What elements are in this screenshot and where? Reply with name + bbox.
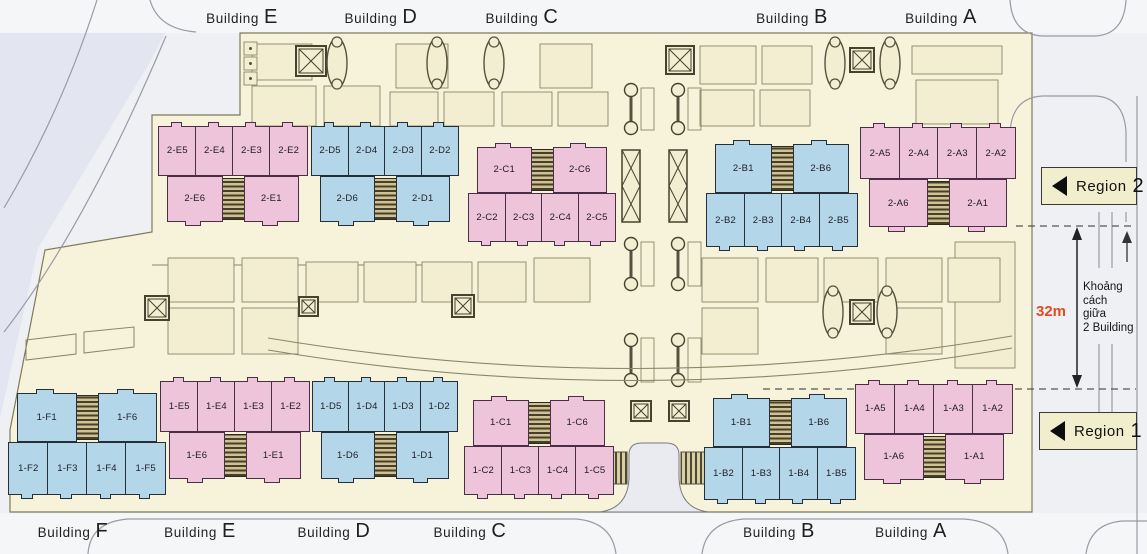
region-2-label[interactable]: Region2 — [1041, 167, 1137, 205]
unit-label: 2-C5 — [586, 212, 607, 223]
unit-1-d6[interactable]: 1-D6 — [321, 432, 375, 479]
unit-1-c4[interactable]: 1-C4 — [538, 446, 577, 495]
unit-label: 1-E6 — [186, 450, 207, 461]
cluster-region2-building-e: 2-E52-E42-E32-E22-E62-E1 — [158, 126, 308, 222]
unit-label: 1-D1 — [412, 450, 433, 461]
unit-1-a6[interactable]: 1-A6 — [864, 434, 924, 480]
cluster-region2-building-d: 2-D52-D42-D32-D22-D62-D1 — [311, 126, 459, 222]
unit-label: 2-D5 — [319, 145, 340, 156]
building-label-bottom-d: BuildingD — [298, 520, 371, 543]
unit-label: 1-C5 — [584, 465, 605, 476]
unit-label: 2-A5 — [870, 148, 891, 159]
building-label-bottom-a: BuildingA — [875, 520, 947, 543]
unit-1-d2[interactable]: 1-D2 — [420, 381, 458, 432]
site-plan: 2-E52-E42-E32-E22-E62-E12-D52-D42-D32-D2… — [0, 0, 1147, 554]
unit-2-a5[interactable]: 2-A5 — [860, 127, 900, 179]
unit-2-d6[interactable]: 2-D6 — [320, 176, 375, 222]
building-label-bottom-b: BuildingB — [743, 520, 815, 543]
unit-1-b4[interactable]: 1-B4 — [779, 447, 818, 500]
building-label-top-c: BuildingC — [486, 6, 559, 29]
unit-label: 2-A1 — [967, 198, 988, 209]
lift-core — [923, 436, 946, 478]
lift-core — [222, 178, 245, 220]
unit-label: 1-C6 — [567, 417, 588, 428]
unit-1-c6[interactable]: 1-C6 — [550, 400, 606, 446]
unit-label: 1-C1 — [490, 417, 511, 428]
unit-label: 2-C4 — [550, 212, 571, 223]
unit-label: 1-B6 — [808, 417, 829, 428]
unit-2-e5[interactable]: 2-E5 — [158, 126, 197, 176]
unit-1-c2[interactable]: 1-C2 — [464, 446, 503, 495]
unit-2-c2[interactable]: 2-C2 — [468, 193, 506, 242]
region-1-label[interactable]: Region1 — [1039, 412, 1137, 450]
unit-label: 2-C6 — [569, 164, 590, 175]
unit-2-e6[interactable]: 2-E6 — [167, 176, 223, 222]
unit-1-e4[interactable]: 1-E4 — [197, 381, 236, 432]
unit-2-a1[interactable]: 2-A1 — [949, 179, 1008, 227]
unit-label: 2-A4 — [908, 148, 929, 159]
unit-1-c5[interactable]: 1-C5 — [575, 446, 614, 495]
unit-2-b4[interactable]: 2-B4 — [781, 193, 820, 247]
unit-label: 2-E6 — [184, 193, 205, 204]
unit-1-d3[interactable]: 1-D3 — [384, 381, 422, 432]
unit-2-c5[interactable]: 2-C5 — [578, 193, 616, 242]
unit-1-e1[interactable]: 1-E1 — [246, 432, 302, 479]
unit-label: 2-E5 — [167, 145, 188, 156]
lift-core — [927, 181, 950, 225]
lift-core — [528, 402, 551, 444]
unit-label: 2-B2 — [715, 215, 736, 226]
unit-2-a3[interactable]: 2-A3 — [937, 127, 977, 179]
unit-2-b1[interactable]: 2-B1 — [715, 144, 772, 193]
building-label-top-a: BuildingA — [905, 6, 977, 29]
unit-1-e2[interactable]: 1-E2 — [271, 381, 310, 432]
unit-2-e1[interactable]: 2-E1 — [244, 176, 300, 222]
unit-label: 1-A5 — [865, 403, 886, 414]
unit-1-a4[interactable]: 1-A4 — [894, 384, 935, 434]
unit-1-a1[interactable]: 1-A1 — [945, 434, 1005, 480]
unit-label: 1-D3 — [392, 401, 413, 412]
distance-note-line: cách — [1083, 295, 1134, 309]
unit-1-a2[interactable]: 1-A2 — [972, 384, 1013, 434]
unit-1-a5[interactable]: 1-A5 — [855, 384, 896, 434]
building-label-top-e: BuildingE — [206, 6, 278, 29]
building-label-bottom-e: BuildingE — [164, 520, 236, 543]
unit-2-c1[interactable]: 2-C1 — [477, 147, 532, 193]
unit-label: 2-D1 — [412, 193, 433, 204]
unit-1-d5[interactable]: 1-D5 — [312, 381, 350, 432]
distance-note-line: giữa — [1083, 308, 1134, 322]
unit-label: 1-A6 — [883, 451, 904, 462]
unit-label: 2-E2 — [278, 145, 299, 156]
unit-2-e2[interactable]: 2-E2 — [269, 126, 308, 176]
unit-label: 2-D4 — [356, 145, 377, 156]
unit-label: 2-A2 — [985, 148, 1006, 159]
unit-label: 1-E3 — [243, 401, 264, 412]
unit-label: 1-F4 — [96, 463, 116, 474]
building-label-bottom-f: BuildingF — [38, 520, 109, 543]
unit-2-d5[interactable]: 2-D5 — [311, 126, 349, 176]
unit-label: 1-F2 — [18, 463, 38, 474]
unit-2-b5[interactable]: 2-B5 — [819, 193, 858, 247]
unit-label: 2-D2 — [429, 145, 450, 156]
unit-label: 1-B1 — [731, 417, 752, 428]
cluster-region1-building-a: 1-A51-A41-A31-A21-A61-A1 — [855, 384, 1013, 480]
unit-1-f3[interactable]: 1-F3 — [47, 442, 88, 495]
unit-1-d4[interactable]: 1-D4 — [348, 381, 386, 432]
unit-1-f1[interactable]: 1-F1 — [17, 393, 77, 442]
cluster-region2-building-c: 2-C12-C62-C22-C32-C42-C5 — [468, 147, 616, 242]
unit-label: 1-D2 — [428, 401, 449, 412]
lift-core — [771, 146, 794, 191]
unit-label: 2-E3 — [241, 145, 262, 156]
unit-label: 1-B4 — [788, 468, 809, 479]
unit-2-c3[interactable]: 2-C3 — [505, 193, 543, 242]
unit-2-d2[interactable]: 2-D2 — [421, 126, 459, 176]
unit-1-e5[interactable]: 1-E5 — [160, 381, 199, 432]
unit-2-d1[interactable]: 2-D1 — [396, 176, 451, 222]
distance-value: 32m — [1036, 303, 1066, 320]
cluster-region1-building-e: 1-E51-E41-E31-E21-E61-E1 — [160, 381, 310, 479]
unit-label: 1-D4 — [356, 401, 377, 412]
unit-label: 1-A2 — [982, 403, 1003, 414]
unit-2-a2[interactable]: 2-A2 — [976, 127, 1016, 179]
unit-label: 2-B4 — [790, 215, 811, 226]
unit-1-b6[interactable]: 1-B6 — [791, 398, 848, 447]
unit-label: 1-C2 — [473, 465, 494, 476]
unit-1-f4[interactable]: 1-F4 — [86, 442, 127, 495]
lift-core — [374, 178, 397, 220]
unit-1-b5[interactable]: 1-B5 — [817, 447, 856, 500]
cluster-region1-building-b: 1-B11-B61-B21-B31-B41-B5 — [704, 398, 856, 500]
unit-1-b1[interactable]: 1-B1 — [713, 398, 770, 447]
unit-label: 1-D5 — [320, 401, 341, 412]
unit-label: 1-D6 — [337, 450, 358, 461]
unit-label: 2-A3 — [947, 148, 968, 159]
building-label-bottom-c: BuildingC — [434, 520, 507, 543]
unit-2-a6[interactable]: 2-A6 — [869, 179, 928, 227]
distance-note-line: Khoảng — [1083, 281, 1134, 295]
unit-2-b2[interactable]: 2-B2 — [706, 193, 745, 247]
unit-2-e4[interactable]: 2-E4 — [195, 126, 234, 176]
lift-core — [769, 400, 792, 445]
unit-label: 2-B5 — [828, 215, 849, 226]
unit-1-c1[interactable]: 1-C1 — [473, 400, 529, 446]
unit-2-c6[interactable]: 2-C6 — [553, 147, 608, 193]
unit-label: 2-C3 — [513, 212, 534, 223]
unit-label: 2-D3 — [393, 145, 414, 156]
unit-1-e3[interactable]: 1-E3 — [234, 381, 273, 432]
unit-2-b6[interactable]: 2-B6 — [793, 144, 850, 193]
building-label-top-d: BuildingD — [345, 6, 418, 29]
unit-1-b3[interactable]: 1-B3 — [742, 447, 781, 500]
unit-label: 1-F5 — [136, 463, 156, 474]
cluster-region1-building-d: 1-D51-D41-D31-D21-D61-D1 — [312, 381, 458, 479]
unit-label: 2-C1 — [494, 164, 515, 175]
unit-label: 2-E4 — [204, 145, 225, 156]
unit-1-f2[interactable]: 1-F2 — [8, 442, 49, 495]
region-arrow-icon — [1052, 176, 1067, 196]
unit-1-b2[interactable]: 1-B2 — [704, 447, 743, 500]
building-label-top-b: BuildingB — [756, 6, 828, 29]
unit-label: 1-E2 — [280, 401, 301, 412]
unit-label: 1-E5 — [169, 401, 190, 412]
unit-1-e6[interactable]: 1-E6 — [169, 432, 225, 479]
unit-label: 1-E1 — [263, 450, 284, 461]
unit-1-c3[interactable]: 1-C3 — [501, 446, 540, 495]
unit-2-a4[interactable]: 2-A4 — [899, 127, 939, 179]
apartment-clusters: 2-E52-E42-E32-E22-E62-E12-D52-D42-D32-D2… — [0, 0, 1147, 554]
unit-label: 1-F6 — [117, 412, 137, 423]
unit-label: 2-B6 — [810, 163, 831, 174]
distance-note-line: 2 Building — [1083, 322, 1134, 336]
unit-label: 1-C4 — [547, 465, 568, 476]
unit-label: 1-E4 — [206, 401, 227, 412]
unit-2-e3[interactable]: 2-E3 — [232, 126, 271, 176]
region-arrow-icon — [1050, 421, 1065, 441]
unit-label: 1-B3 — [751, 468, 772, 479]
unit-label: 1-B5 — [826, 468, 847, 479]
lift-core — [76, 395, 99, 440]
unit-label: 1-B2 — [713, 468, 734, 479]
unit-label: 1-F3 — [57, 463, 77, 474]
unit-1-f6[interactable]: 1-F6 — [98, 393, 158, 442]
unit-1-d1[interactable]: 1-D1 — [396, 432, 450, 479]
unit-label: 2-D6 — [337, 193, 358, 204]
lift-core — [224, 434, 247, 477]
unit-label: 2-B3 — [753, 215, 774, 226]
lift-core — [531, 149, 554, 191]
unit-label: 1-F1 — [37, 412, 57, 423]
unit-label: 1-A3 — [943, 403, 964, 414]
cluster-region1-building-f: 1-F11-F61-F21-F31-F41-F5 — [8, 393, 166, 495]
unit-label: 2-B1 — [733, 163, 754, 174]
unit-label: 1-A1 — [964, 451, 985, 462]
unit-label: 2-C2 — [476, 212, 497, 223]
distance-note: Khoảngcáchgiữa2 Building — [1083, 281, 1134, 335]
unit-label: 2-E1 — [261, 193, 282, 204]
unit-2-d3[interactable]: 2-D3 — [384, 126, 422, 176]
unit-2-c4[interactable]: 2-C4 — [541, 193, 579, 242]
lift-core — [374, 434, 397, 477]
unit-label: 1-A4 — [904, 403, 925, 414]
unit-1-a3[interactable]: 1-A3 — [933, 384, 974, 434]
unit-2-d4[interactable]: 2-D4 — [348, 126, 386, 176]
cluster-region2-building-a: 2-A52-A42-A32-A22-A62-A1 — [860, 127, 1016, 227]
cluster-region2-building-b: 2-B12-B62-B22-B32-B42-B5 — [706, 144, 858, 247]
unit-label: 2-A6 — [888, 198, 909, 209]
unit-label: 1-C3 — [510, 465, 531, 476]
cluster-region1-building-c: 1-C11-C61-C21-C31-C41-C5 — [464, 400, 614, 495]
unit-2-b3[interactable]: 2-B3 — [744, 193, 783, 247]
